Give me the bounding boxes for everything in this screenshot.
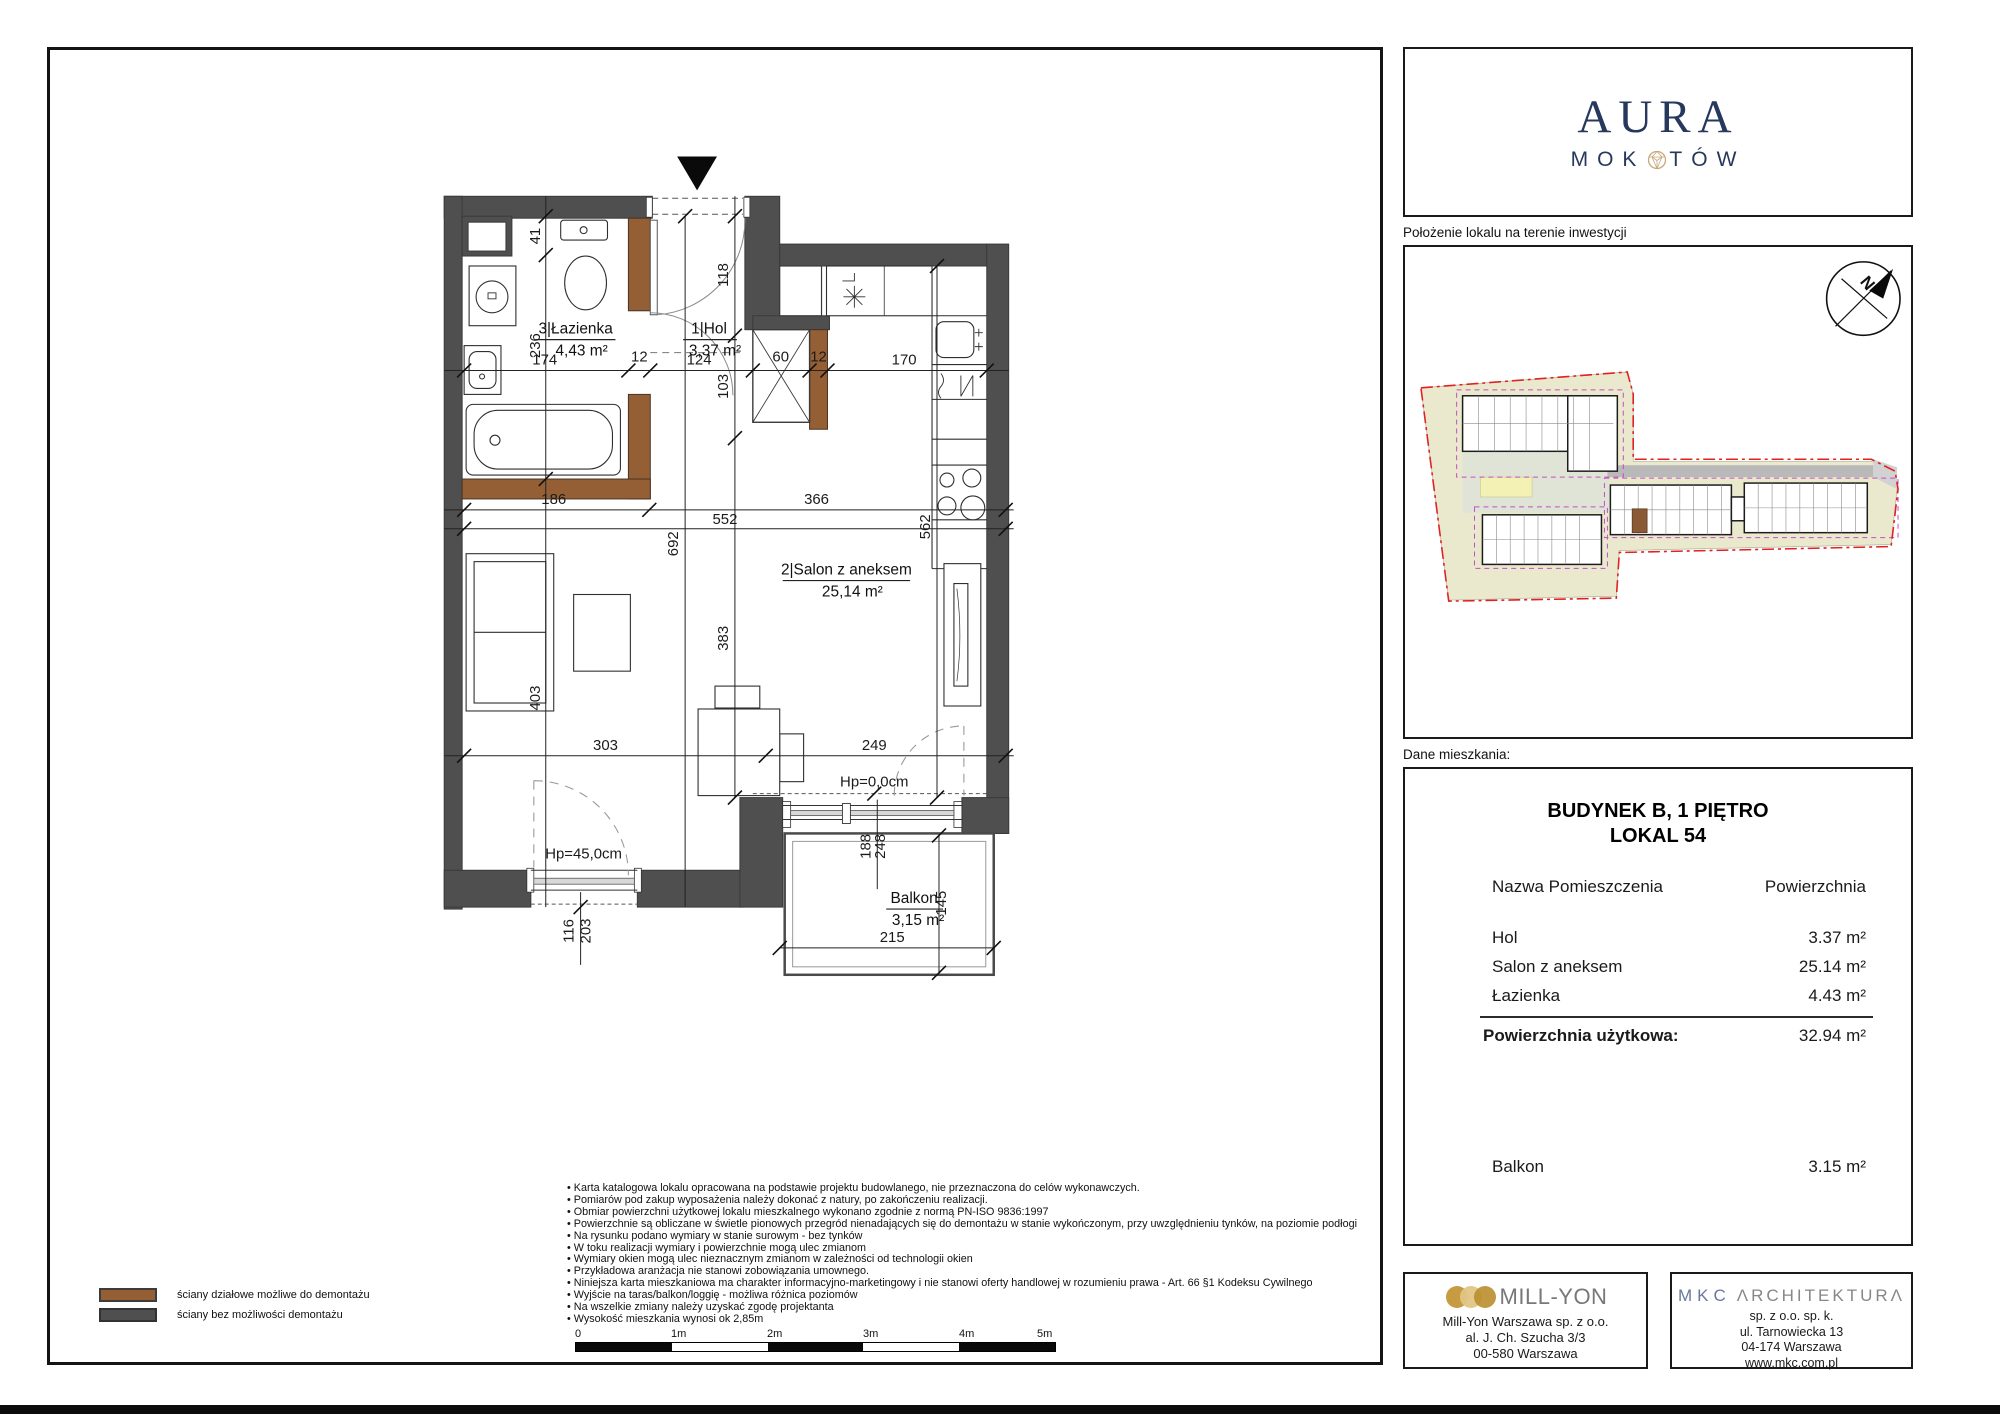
svg-text:692: 692 <box>665 531 682 556</box>
table-balcony-row: Balkon 3.15 m² <box>1492 1157 1866 1177</box>
col-header-name: Nazwa Pomieszczenia <box>1492 877 1663 897</box>
coffee-table-icon <box>574 595 631 672</box>
floor-plan-drawing: 174 12 124 60 12 170 186 366 552 303 249… <box>50 50 1380 1362</box>
scale-label: 0 <box>575 1328 581 1340</box>
vent-icon <box>843 286 865 308</box>
svg-text:562: 562 <box>917 514 934 539</box>
scale-label: 4m <box>959 1328 974 1340</box>
kitchen-cabinet <box>826 266 932 316</box>
svg-text:Hp=45,0cm: Hp=45,0cm <box>545 845 622 862</box>
legend: ściany działowe możliwe do demontażu ści… <box>99 1288 370 1328</box>
table-header: Nazwa Pomieszczenia Powierzchnia <box>1492 877 1866 897</box>
site-plan-drawing: N <box>1405 247 1911 737</box>
svg-text:170: 170 <box>892 352 917 369</box>
chair-icon <box>715 686 760 708</box>
window <box>527 868 641 904</box>
entrance-door <box>646 197 750 314</box>
room-area: 25.14 m² <box>1799 952 1866 981</box>
apartment-data-table: BUDYNEK B, 1 PIĘTRO LOKAL 54 Nazwa Pomie… <box>1403 767 1913 1246</box>
svg-text:249: 249 <box>862 737 887 754</box>
table-row: Salon z aneksem 25.14 m² <box>1492 952 1866 981</box>
room-name: Salon z aneksem <box>1492 952 1622 981</box>
svg-text:12: 12 <box>810 349 827 366</box>
scale-label: 5m <box>1037 1328 1052 1340</box>
compass-icon: N <box>1827 262 1900 335</box>
svg-text:383: 383 <box>715 626 732 651</box>
address-line: 00-580 Warszawa <box>1405 1346 1646 1362</box>
address-line: ul. Tarnowiecka 13 <box>1672 1325 1911 1341</box>
svg-text:3,37 m²: 3,37 m² <box>689 343 741 360</box>
svg-text:215: 215 <box>880 929 905 946</box>
room-label-living: 2|Salon z aneksem <box>781 562 912 579</box>
col-header-area: Powierzchnia <box>1765 877 1866 897</box>
room-area: 4.43 m² <box>1808 981 1866 1010</box>
address-line: www.mkc.com.pl <box>1672 1356 1911 1372</box>
scale-label: 3m <box>863 1328 878 1340</box>
millyon-wordmark: MILL-YON <box>1500 1284 1608 1310</box>
data-caption: Dane mieszkania: <box>1403 747 1913 762</box>
scale-label: 2m <box>767 1328 782 1340</box>
table-separator <box>1480 1016 1873 1018</box>
scale-bar: 0 1m 2m 3m 4m 5m <box>575 1328 1057 1354</box>
highlighted-unit <box>1632 509 1647 533</box>
disclaimer-item: Obmiar powierzchni użytkowej lokalu mies… <box>567 1207 1357 1219</box>
wall-niche <box>468 222 506 251</box>
developer-address: Mill-Yon Warszawa sp. z o.o.al. J. Ch. S… <box>1405 1314 1646 1362</box>
road <box>1607 465 1873 477</box>
address-line: 04-174 Warszawa <box>1672 1340 1911 1356</box>
salon-furniture <box>466 554 981 796</box>
millyon-logo: MILL-YON <box>1405 1284 1646 1310</box>
room-label-bathroom: 3|Łazienka <box>538 321 613 338</box>
brand-subname: MOK TÓW <box>1571 148 1746 172</box>
svg-text:552: 552 <box>713 511 738 528</box>
table-rows: Hol 3.37 m² Salon z aneksem 25.14 m² Łaz… <box>1492 923 1866 1010</box>
svg-text:12: 12 <box>631 349 648 366</box>
kitchen-sink-icon <box>936 322 974 358</box>
svg-text:4,43 m²: 4,43 m² <box>555 343 607 360</box>
legend-swatch-grey <box>99 1308 157 1322</box>
room-area: 3.37 m² <box>1808 923 1866 952</box>
room-name: Balkon <box>1492 1157 1544 1177</box>
mkc-logo: MKCΛRCHITEKTURΛ <box>1672 1286 1911 1306</box>
address-line: sp. z o.o. sp. k. <box>1672 1309 1911 1325</box>
right-column: AURA MOK TÓW Położenie lokalu na terenie… <box>1403 47 1913 1369</box>
kitchen-annex <box>826 266 986 569</box>
legend-row-partition: ściany działowe możliwe do demontażu <box>99 1288 370 1302</box>
svg-text:118: 118 <box>715 263 732 287</box>
svg-text:41: 41 <box>527 228 544 245</box>
playground <box>1480 477 1532 497</box>
svg-text:403: 403 <box>527 686 544 711</box>
brand-logo-box: AURA MOK TÓW <box>1403 47 1913 217</box>
table-row: Hol 3.37 m² <box>1492 923 1866 952</box>
building-floor-title: BUDYNEK B, 1 PIĘTRO <box>1405 799 1911 824</box>
total-value: 32.94 m² <box>1799 1026 1866 1046</box>
room-name: Łazienka <box>1492 981 1560 1010</box>
scale-label: 1m <box>671 1328 686 1340</box>
disclaimer-item: Powierzchnie są obliczane w świetle pion… <box>567 1219 1357 1231</box>
architect-box: MKCΛRCHITEKTURΛ sp. z o.o. sp. k.ul. Tar… <box>1670 1272 1913 1369</box>
site-plan-caption: Położenie lokalu na terenie inwestycji <box>1403 225 1913 240</box>
svg-text:248: 248 <box>872 834 889 859</box>
brand-name: AURA <box>1577 92 1738 142</box>
toilet-bowl-icon <box>565 256 607 310</box>
site-plan-box: N <box>1403 245 1913 739</box>
legend-label: ściany działowe możliwe do demontażu <box>177 1289 370 1301</box>
legend-row-structural: ściany bez możliwości demontażu <box>99 1308 370 1322</box>
room-label-hall: 1|Hol <box>691 321 727 338</box>
room-label-balcony: Balkon <box>891 890 938 907</box>
svg-text:60: 60 <box>772 349 789 366</box>
address-line: al. J. Ch. Szucha 3/3 <box>1405 1330 1646 1346</box>
svg-text:366: 366 <box>804 491 829 508</box>
svg-text:103: 103 <box>715 374 732 399</box>
floor-plan-card: 174 12 124 60 12 170 186 366 552 303 249… <box>47 47 1383 1365</box>
svg-text:Hp=0,0cm: Hp=0,0cm <box>840 774 908 791</box>
legend-label: ściany bez możliwości demontażu <box>177 1309 343 1321</box>
entrance-arrow-icon <box>677 156 717 190</box>
table-title: BUDYNEK B, 1 PIĘTRO LOKAL 54 <box>1405 799 1911 849</box>
unit-title: LOKAL 54 <box>1405 824 1911 849</box>
legend-swatch-brown <box>99 1288 157 1302</box>
page-edge-bar <box>0 1405 2000 1414</box>
dining-table-icon <box>698 709 780 796</box>
disclaimer-item: Wysokość mieszkania wynosi ok 2,85m <box>567 1314 1357 1326</box>
architect-address: sp. z o.o. sp. k.ul. Tarnowiecka 1304-17… <box>1672 1309 1911 1371</box>
table-row: Łazienka 4.43 m² <box>1492 981 1866 1010</box>
total-label: Powierzchnia użytkowa: <box>1483 1026 1679 1046</box>
address-line: Mill-Yon Warszawa sp. z o.o. <box>1405 1314 1646 1330</box>
stove-icon <box>938 469 985 520</box>
svg-text:116: 116 <box>561 919 578 943</box>
disclaimer-item: Na rysunku podano wymiary w stanie surow… <box>567 1231 1357 1243</box>
disclaimer-list: Karta katalogowa lokalu opracowana na po… <box>567 1183 1357 1326</box>
svg-text:3,15 m²: 3,15 m² <box>892 912 944 929</box>
developer-box: MILL-YON Mill-Yon Warszawa sp. z o.o.al.… <box>1403 1272 1648 1369</box>
millyon-circles-icon <box>1444 1284 1496 1310</box>
svg-text:303: 303 <box>593 737 618 754</box>
svg-text:25,14 m²: 25,14 m² <box>822 583 883 600</box>
room-area: 3.15 m² <box>1808 1157 1866 1177</box>
footer: MILL-YON Mill-Yon Warszawa sp. z o.o.al.… <box>1403 1272 1913 1369</box>
catalog-page: 174 12 124 60 12 170 186 366 552 303 249… <box>0 0 2000 1414</box>
svg-text:186: 186 <box>541 491 566 508</box>
scale-bar-segments <box>575 1342 1056 1352</box>
svg-text:203: 203 <box>578 919 595 944</box>
room-name: Hol <box>1492 923 1518 952</box>
gem-icon <box>1647 150 1667 170</box>
table-total-row: Powierzchnia użytkowa: 32.94 m² <box>1483 1026 1866 1046</box>
chair-icon <box>780 734 804 782</box>
